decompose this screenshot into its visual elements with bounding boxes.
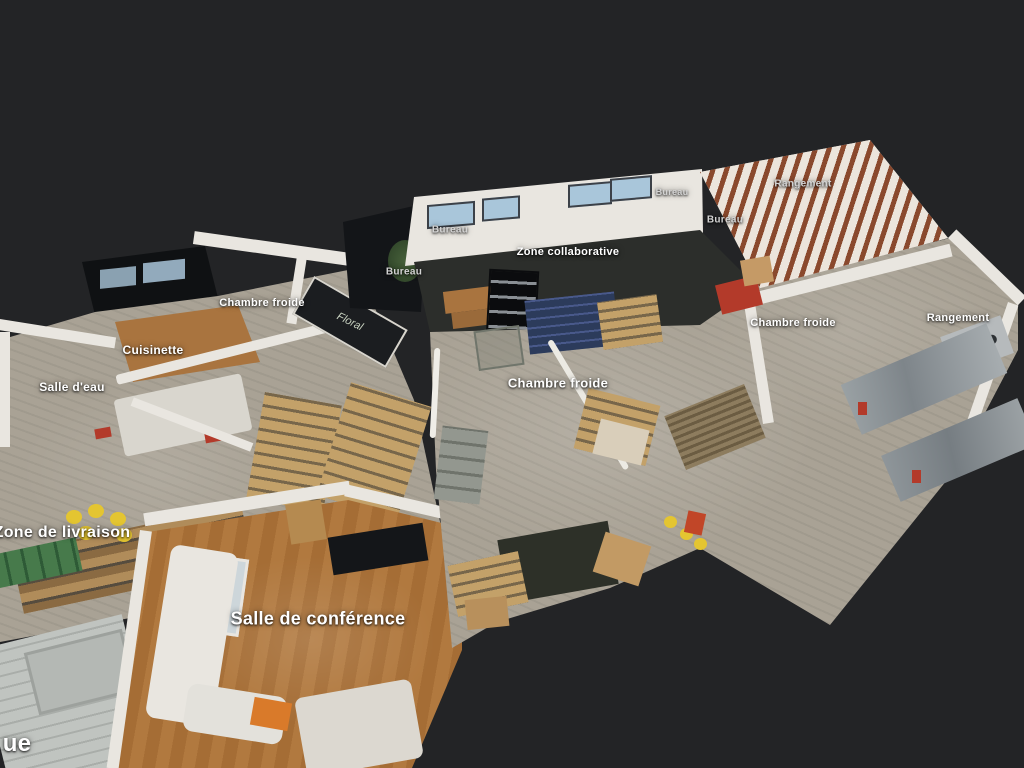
- pallet-stack: [597, 294, 663, 350]
- yellow-crate: [66, 510, 82, 524]
- yellow-crate: [116, 528, 132, 542]
- dollhouse-3d-view[interactable]: Floral: [0, 0, 1024, 768]
- metal-shelf: [434, 425, 489, 504]
- yellow-crate: [78, 526, 94, 540]
- red-table-leg: [912, 470, 921, 483]
- metal-cart: [473, 325, 524, 371]
- wall: [0, 332, 10, 447]
- red-table-leg: [858, 402, 867, 415]
- cardboard-box: [285, 499, 327, 544]
- wall: [193, 231, 365, 268]
- window: [610, 175, 652, 202]
- yellow-crate: [88, 504, 104, 518]
- chalkboard-text: Floral: [335, 311, 365, 334]
- yellow-crate: [664, 516, 677, 528]
- yellow-crate: [694, 538, 707, 550]
- cardboard-box: [465, 596, 510, 630]
- window: [568, 181, 612, 208]
- cardboard-box: [740, 256, 774, 287]
- window: [427, 201, 475, 229]
- window: [482, 195, 520, 221]
- yellow-crate: [110, 512, 126, 526]
- skylight-window: [100, 266, 136, 289]
